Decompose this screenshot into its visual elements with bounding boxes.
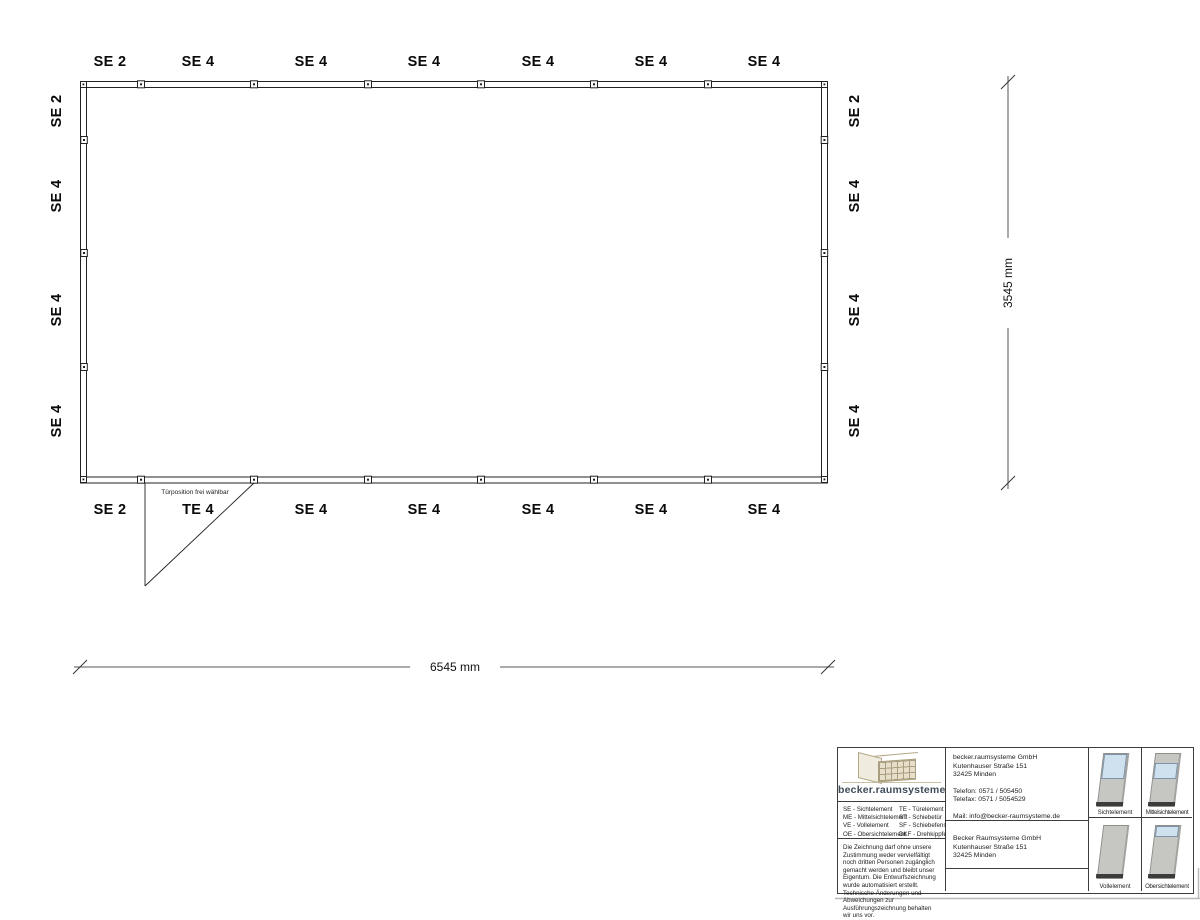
empty-cell (946, 869, 1089, 891)
wall-junctions-right (821, 137, 828, 371)
mittelsichtelement-panel-image (1149, 753, 1182, 807)
wall-label-top-2: SE 4 (153, 54, 243, 70)
dimension-height-text: 3545 mm (1001, 238, 1015, 328)
logo-ground-line (842, 782, 941, 783)
wall-label-right-2: SE 4 (847, 151, 863, 241)
wall-label-bottom-7: SE 4 (719, 502, 809, 518)
wall-label-bottom-5: SE 4 (493, 502, 583, 518)
vollelement-panel-image (1097, 825, 1130, 879)
title-block: becker.raumsysteme® SE - SichtelementTE … (837, 747, 1194, 894)
wall-label-bottom-6: SE 4 (606, 502, 696, 518)
wall-label-top-5: SE 4 (493, 54, 583, 70)
legend-me: ME - Mittelsichtelement (843, 814, 899, 822)
wall-label-top-4: SE 4 (379, 54, 469, 70)
wall-label-top-7: SE 4 (719, 54, 809, 70)
wall-label-left-4: SE 4 (49, 376, 65, 466)
element-label-mittelsichtelement: Mittelsichtelement (1142, 810, 1192, 816)
legend-te: TE - Türelement (899, 806, 944, 814)
wall-label-bottom-3: SE 4 (266, 502, 356, 518)
dimension-width-text: 6545 mm (410, 660, 500, 674)
door-swing (145, 483, 254, 586)
logo-cell: becker.raumsysteme® (838, 748, 946, 802)
abbreviation-legend: SE - SichtelementTE - Türelement ME - Mi… (838, 802, 946, 839)
wall-label-top-3: SE 4 (266, 54, 356, 70)
door-position-note: Türposition frei wählbar (125, 489, 265, 496)
legend-ve: VE - Vollelement (843, 822, 899, 830)
owner-cell: Becker Raumsysteme GmbH Kutenhauser Stra… (946, 821, 1089, 869)
contact-company: becker.raumsysteme GmbH (953, 754, 1088, 763)
element-cell-obersichtelement: Obersichtelement (1142, 818, 1192, 891)
wall-corners (81, 82, 828, 483)
wall-label-left-2: SE 4 (49, 151, 65, 241)
contact-street: Kutenhauser Straße 151 (953, 763, 1088, 772)
owner-street: Kutenhauser Straße 151 (953, 844, 1088, 853)
wall-label-left-3: SE 4 (49, 265, 65, 355)
element-cell-sichtelement: Sichtelement (1089, 748, 1142, 818)
wall-label-bottom-2: TE 4 (153, 502, 243, 518)
element-cell-mittelsichtelement: Mittelsichtelement (1142, 748, 1192, 818)
legend-se: SE - Sichtelement (843, 806, 899, 814)
contact-phone: Telefon: 0571 / 505450 (953, 788, 1088, 797)
legend-oe: OE - Obersichtelement (843, 831, 899, 839)
legend-st: ST - Schiebetür (899, 814, 942, 822)
wall-label-left-1: SE 2 (49, 66, 65, 156)
contact-city: 32425 Minden (953, 771, 1088, 780)
wall-label-top-1: SE 2 (65, 54, 155, 70)
element-label-vollelement: Vollelement (1089, 884, 1141, 890)
wall-label-right-4: SE 4 (847, 376, 863, 466)
brand-name: becker.raumsysteme (838, 784, 946, 796)
obersichtelement-panel-image (1149, 825, 1182, 879)
sichtelement-panel-image (1097, 753, 1130, 807)
room-walls (81, 82, 828, 484)
drawing-sheet: { "plan": { "top_labels": ["SE 2", "SE 4… (0, 0, 1200, 900)
wall-label-bottom-4: SE 4 (379, 502, 469, 518)
element-label-sichtelement: Sichtelement (1089, 810, 1141, 816)
contact-fax: Telefax: 0571 / 5054529 (953, 796, 1088, 805)
brand-wordmark: becker.raumsysteme® (838, 784, 940, 796)
wall-label-top-6: SE 4 (606, 54, 696, 70)
wall-label-right-3: SE 4 (847, 265, 863, 355)
contact-cell: becker.raumsysteme GmbH Kutenhauser Stra… (946, 748, 1089, 821)
wall-label-bottom-1: SE 2 (65, 502, 155, 518)
disclaimer-cell: Die Zeichnung darf ohne unsere Zustimmun… (838, 839, 946, 891)
logo-graphic (858, 752, 922, 781)
owner-company: Becker Raumsysteme GmbH (953, 835, 1088, 844)
wall-label-right-1: SE 2 (847, 66, 863, 156)
element-label-obersichtelement: Obersichtelement (1142, 884, 1192, 890)
element-cell-vollelement: Vollelement (1089, 818, 1142, 891)
owner-city: 32425 Minden (953, 852, 1088, 861)
disclaimer-text: Die Zeichnung darf ohne unsere Zustimmun… (843, 844, 936, 919)
